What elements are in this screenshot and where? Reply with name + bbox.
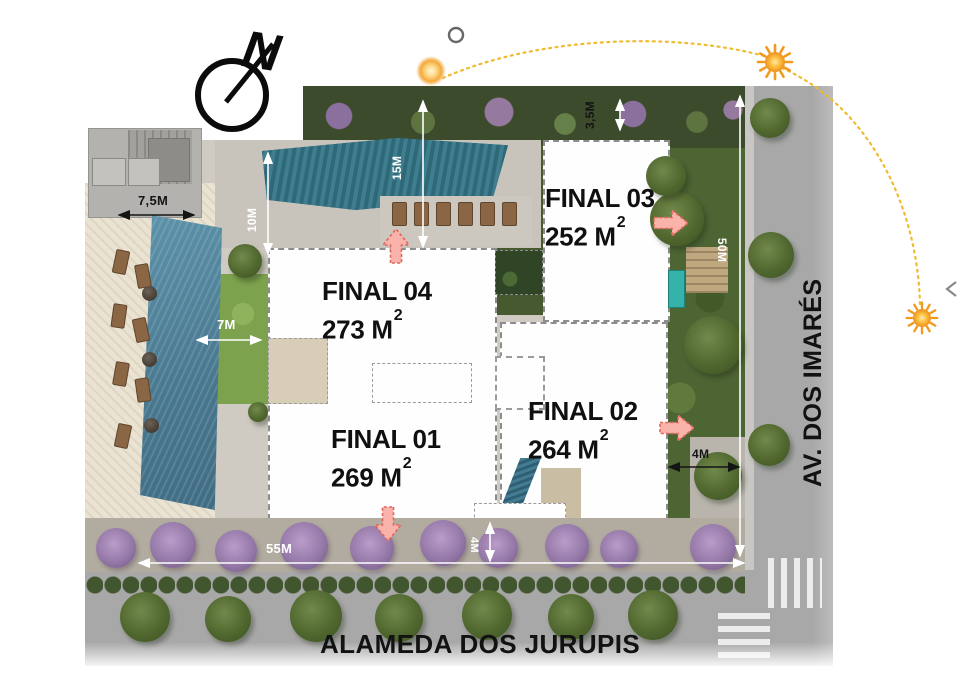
dim-label-55m: 55M bbox=[266, 541, 292, 556]
dim-label-4m-sidewalk: 4M bbox=[468, 537, 480, 553]
entrance-arrow-final03-icon bbox=[654, 210, 688, 236]
unit-name: FINAL 01 bbox=[331, 423, 441, 456]
entrance-arrow-final01-icon bbox=[375, 507, 401, 541]
entrance-arrow-final04-icon bbox=[383, 229, 409, 263]
unit-area: 273 M2 bbox=[322, 308, 432, 347]
dim-label-7m: 7M bbox=[217, 317, 236, 332]
unit-area: 252 M2 bbox=[545, 215, 655, 254]
sun-evening-icon bbox=[907, 303, 938, 334]
chevron-left-icon bbox=[947, 282, 956, 296]
unit-area: 269 M2 bbox=[331, 456, 441, 495]
unit-label-final-01: FINAL 01 269 M2 bbox=[331, 423, 441, 495]
unit-label-final-04: FINAL 04 273 M2 bbox=[322, 275, 432, 347]
dim-label-15m: 15M bbox=[390, 156, 404, 180]
dim-label-4m-garden: 4M bbox=[692, 447, 709, 461]
dim-label-35m: 3,5M bbox=[583, 101, 597, 129]
dim-label-50m: 50M bbox=[715, 238, 729, 262]
street-label-av-dos-imares: AV. DOS IMARÉS bbox=[799, 279, 828, 487]
dim-label-pool-width: 7,5M bbox=[138, 193, 168, 208]
unit-label-final-03: FINAL 03 252 M2 bbox=[545, 182, 655, 254]
sun-position-marker-icon bbox=[449, 28, 463, 42]
unit-label-final-02: FINAL 02 264 M2 bbox=[528, 395, 638, 467]
unit-name: FINAL 02 bbox=[528, 395, 638, 428]
unit-name: FINAL 03 bbox=[545, 182, 655, 215]
compass-icon: N bbox=[198, 20, 286, 129]
entrance-arrow-final02-icon bbox=[660, 415, 694, 441]
street-label-alameda-dos-jurupis: ALAMEDA DOS JURUPIS bbox=[320, 629, 640, 660]
plan-overlay: N bbox=[0, 0, 980, 678]
sun-morning-icon bbox=[416, 56, 446, 86]
site-plan: N 7,5M 10M 15M 3,5M 7M 50M 4M 55M 4M bbox=[0, 0, 980, 678]
dim-label-10m: 10M bbox=[245, 208, 259, 232]
sun-path-arc bbox=[443, 41, 920, 305]
sun-noon-icon bbox=[758, 45, 792, 79]
compass-north-label: N bbox=[238, 20, 286, 83]
unit-name: FINAL 04 bbox=[322, 275, 432, 308]
unit-area: 264 M2 bbox=[528, 428, 638, 467]
